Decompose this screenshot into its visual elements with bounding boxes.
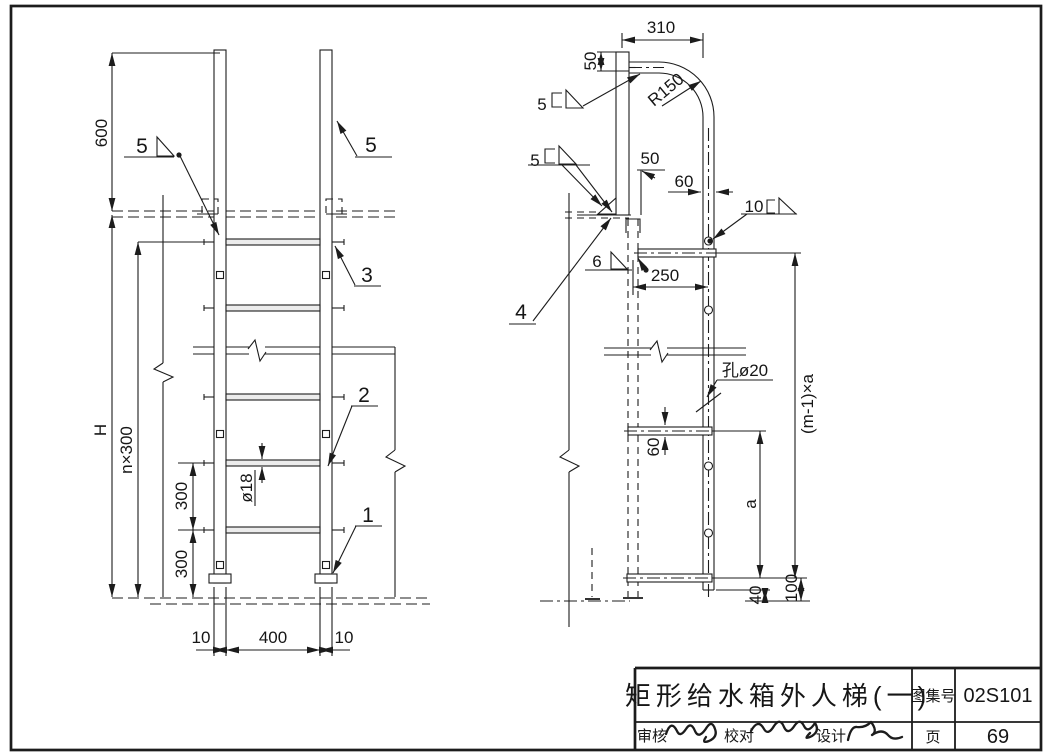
signature-reviewer (666, 724, 716, 742)
weld-callout-10: 10 (707, 197, 797, 244)
weld-flag-icon (611, 252, 627, 269)
dim-310-text: 310 (647, 18, 675, 37)
part-2-text: 2 (358, 384, 370, 407)
dim-10l-text: 10 (192, 628, 211, 647)
stile-shoe-left (209, 574, 231, 583)
dim-600-text: 600 (92, 119, 111, 147)
weld-flag-icon (559, 146, 576, 164)
weld-6-text: 6 (592, 252, 601, 271)
part-label-1: 1 (333, 504, 382, 573)
dim-m1a: (m-1)×a (795, 253, 817, 578)
atlas-label: 图集号 (910, 688, 955, 705)
weld-10-text: 10 (745, 197, 764, 216)
weld-callout-5-mid: 5 (528, 146, 612, 212)
dim-m1a-text: (m-1)×a (798, 373, 817, 434)
handrail-bend (629, 62, 714, 597)
weld-symbol-icon (552, 93, 562, 107)
reviewer-label: 审核 (637, 728, 667, 745)
weld-flag-icon (566, 90, 583, 108)
dim-50-mid: 50 (637, 149, 665, 215)
drawing-sheet: 600 H n×300 300 300 ø18 (0, 0, 1053, 756)
dim-n300-text: n×300 (117, 426, 136, 474)
drawing-canvas: 600 H n×300 300 300 ø18 (0, 0, 1053, 756)
part-3-text: 3 (361, 264, 373, 287)
side-view: 310 50 R150 50 60 5 (509, 18, 817, 627)
weld-5-mid-text: 5 (530, 151, 539, 170)
signatures (666, 722, 902, 742)
dim-60-top: 60 (668, 172, 733, 192)
dim-50-top-text: 50 (581, 52, 600, 71)
title-block: 矩形给水箱外人梯(一) 图集号 02S101 页 69 审核 校对 设计 (625, 668, 1041, 750)
page-label: 页 (925, 729, 940, 746)
part-label-4: 4 (509, 218, 611, 324)
wall-bracket-top (634, 249, 801, 257)
dim-600: 600 (92, 53, 220, 211)
weld-symbol-icon (767, 200, 775, 213)
handrail-post (616, 52, 629, 215)
ladder-stile-left (214, 50, 226, 583)
page-border (11, 6, 1041, 750)
atlas-number: 02S101 (964, 685, 1033, 707)
front-view: 600 H n×300 300 300 ø18 (91, 50, 430, 656)
drawing-title: 矩形给水箱外人梯(一) (625, 681, 931, 711)
weld-symbol-icon (545, 149, 555, 163)
tank-bottom-line (112, 598, 430, 604)
part-label-2: 2 (328, 384, 378, 466)
part-label-5-right: 5 (337, 121, 392, 157)
dim-40: 40 (746, 586, 765, 605)
signature-checker (751, 722, 817, 738)
dim-tank-height: H (91, 215, 112, 597)
field-weld-flag-icon (157, 137, 174, 156)
dim-60-top-text: 60 (675, 172, 694, 191)
page-number: 69 (987, 726, 1009, 748)
dim-250: 250 (633, 260, 708, 295)
checker-label: 校对 (724, 728, 754, 745)
dim-rung-dia: ø18 (237, 443, 262, 506)
weld-5-top-text: 5 (537, 95, 546, 114)
weld-flag-icon (779, 198, 796, 214)
dim-400-text: 400 (259, 628, 287, 647)
part-4-text: 4 (515, 301, 527, 324)
part-label-5-left: 5 (124, 135, 219, 235)
dim-h-text: H (91, 424, 110, 436)
tank-top-line (112, 211, 400, 217)
wall-bracket-mid (624, 427, 766, 435)
dim-a-text: a (741, 499, 760, 509)
break-line-side (604, 341, 746, 362)
dim-n300: n×300 (117, 242, 205, 597)
designer-label: 设计 (816, 728, 846, 745)
ladder-stile-right (320, 50, 332, 583)
dim-300a-text: 300 (172, 482, 191, 510)
dim-phi18-text: ø18 (237, 473, 256, 502)
dim-r150: R150 (644, 69, 701, 110)
dim-10r-text: 10 (335, 628, 354, 647)
dim-bottom-row: 10 400 10 (192, 587, 354, 656)
dim-310: 310 (622, 18, 703, 58)
hole-callout-text: 孔ø20 (722, 361, 768, 380)
dim-50-mid-text: 50 (641, 149, 660, 168)
dim-300b-text: 300 (172, 550, 191, 578)
dim-40-text: 40 (746, 586, 765, 605)
part-5-right-text: 5 (365, 134, 377, 157)
signature-designer (848, 722, 902, 740)
part-label-3: 3 (335, 246, 381, 287)
part-1-text: 1 (362, 504, 374, 527)
dim-300-pair: 300 300 (172, 463, 210, 597)
dim-250-text: 250 (651, 266, 679, 285)
stile-bolts (217, 272, 330, 569)
stile-shoe-right (315, 574, 337, 583)
hole-callout: 孔ø20 (707, 361, 773, 397)
part-5-left-text: 5 (136, 135, 148, 158)
dim-a: a (741, 431, 760, 578)
dim-100: 100 (782, 574, 801, 602)
dim-60-bracket-text: 60 (644, 438, 663, 457)
dim-100-text: 100 (782, 574, 801, 602)
